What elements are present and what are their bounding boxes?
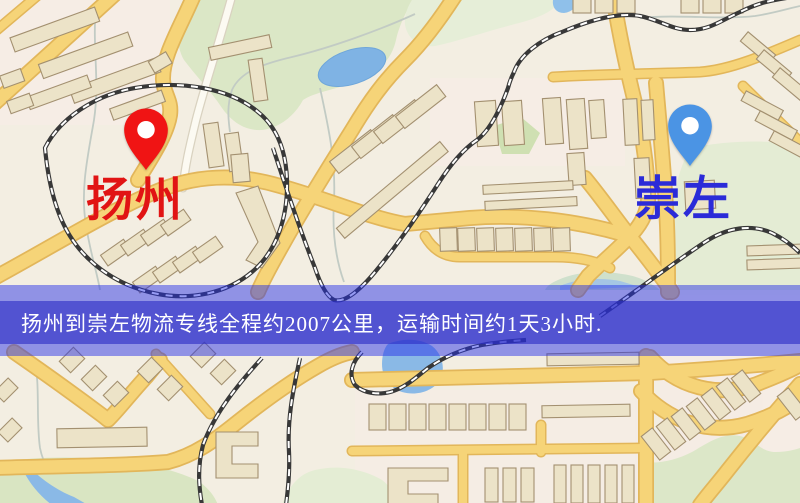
route-info-band: 扬州到崇左物流专线全程约2007公里，运输时间约1天3小时. bbox=[0, 301, 800, 344]
route-info-banner: 扬州到崇左物流专线全程约2007公里，运输时间约1天3小时. bbox=[0, 285, 800, 356]
route-info-text: 扬州到崇左物流专线全程约2007公里，运输时间约1天3小时. bbox=[0, 308, 602, 338]
origin-pin-icon bbox=[123, 107, 169, 172]
destination-pin-icon bbox=[667, 103, 713, 168]
origin-pin[interactable] bbox=[123, 107, 169, 172]
map-screenshot: 扬州 崇左 扬州到崇左物流专线全程约2007公里，运输时间约1天3小时. bbox=[0, 0, 800, 503]
origin-city-label: 扬州 bbox=[86, 177, 184, 224]
destination-pin[interactable] bbox=[667, 103, 713, 168]
street-map-graphic bbox=[0, 0, 800, 503]
destination-city-label: 崇左 bbox=[634, 176, 732, 223]
